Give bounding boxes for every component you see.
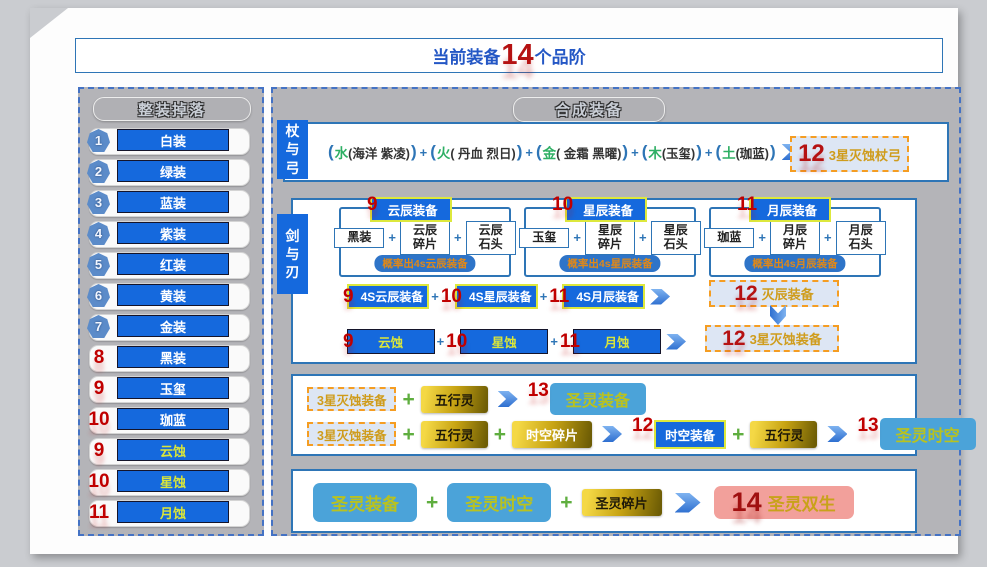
plus-icon: + <box>402 424 414 445</box>
synthesis-panel: 合成装备 杖与弓 剑与刃 (水(海洋 紫凌)) + (火( 丹血 烈日)) + … <box>271 87 961 536</box>
drop-row-blue: 3蓝装 <box>80 189 262 217</box>
slide-stage: 当前装备 14 个品阶 整装掉落 1白装 2绿装 3蓝装 4紫装 5红装 6黄装… <box>0 0 987 567</box>
recipe-title: 星辰装备 <box>565 197 647 222</box>
recipe-header: 10 星辰装备 <box>544 197 647 222</box>
element-metal: 金 <box>543 142 557 162</box>
holy-twin-section: 圣灵装备 + 圣灵时空 + 圣灵碎片 14 圣灵双生 <box>291 469 917 533</box>
element-fire-detail: ( 丹血 烈日) <box>450 143 515 162</box>
drop-row-gold: 7金装 <box>80 313 262 341</box>
sword-blade-label: 剑与刃 <box>277 214 308 294</box>
plus-icon: + <box>437 334 445 349</box>
tier-number: 10 <box>84 471 114 493</box>
ingredient: 月辰 碎片 <box>770 221 820 255</box>
element-wood: 木 <box>648 142 662 162</box>
drop-row-star-eclipse: 10星蚀 <box>80 468 262 496</box>
equip-cloud-eclipse: 云蚀 <box>347 329 435 354</box>
equip-spacetime: 时空装备 <box>654 420 726 449</box>
material-wuxingling: 五行灵 <box>421 386 488 413</box>
tier-bar: 云蚀 <box>117 439 229 461</box>
arrow-right-icon <box>602 426 622 442</box>
plus-icon: + <box>525 145 533 160</box>
arrow-right-icon <box>827 426 847 442</box>
drop-row-white: 1白装 <box>80 127 262 155</box>
paren: ) <box>517 142 523 162</box>
row-eclipse-equipment: 9 云蚀 + 10 星蚀 + 11 月蚀 <box>343 329 691 354</box>
arrow-right-icon <box>666 334 686 350</box>
drop-panel: 整装掉落 1白装 2绿装 3蓝装 4紫装 5红装 6黄装 7金装 8黑装 9玉玺… <box>78 87 264 536</box>
plus-icon: + <box>388 230 396 245</box>
plus-icon: + <box>431 289 439 304</box>
recipe-columns: 9 云辰装备 黑装 + 云辰 碎片 + 云辰 石头 概率出4s云辰装备 <box>339 197 881 277</box>
tier-number: 9 <box>343 286 354 308</box>
result-label: 3星灭蚀装备 <box>750 329 822 348</box>
paren: ) <box>622 142 628 162</box>
paren: ( <box>430 142 436 162</box>
result-tier-number: 12 <box>798 142 825 166</box>
ingredient: 玉玺 <box>519 228 569 248</box>
slide-page: 当前装备 14 个品阶 整装掉落 1白装 2绿装 3蓝装 4紫装 5红装 6黄装… <box>30 8 958 554</box>
title-suffix: 个品阶 <box>535 43 586 68</box>
result-label: 3星灭蚀杖弓 <box>829 145 901 164</box>
arrow-down-icon <box>770 305 786 325</box>
ingredients: 珈蓝 + 月辰 碎片 + 月辰 石头 <box>711 221 879 255</box>
element-earth-detail: (珈蓝) <box>736 143 769 162</box>
result-holy-spacetime: 圣灵时空 <box>880 418 976 450</box>
drop-panel-header: 整装掉落 <box>93 97 251 121</box>
drop-row-cloud-eclipse: 9云蚀 <box>80 437 262 465</box>
synthesis-panel-header: 合成装备 <box>513 97 665 122</box>
drop-list: 1白装 2绿装 3蓝装 4紫装 5红装 6黄装 7金装 8黑装 9玉玺 10珈蓝… <box>80 127 262 527</box>
tier-bar: 紫装 <box>117 222 229 244</box>
recipe-header: 9 云辰装备 <box>359 197 452 222</box>
title-prefix: 当前装备 <box>432 43 500 68</box>
recipe-star: 10 星辰装备 玉玺 + 星辰 碎片 + 星辰 石头 概率出4s星辰装备 <box>524 207 696 277</box>
probability-note: 概率出4s月辰装备 <box>744 255 845 272</box>
element-earth: 土 <box>722 142 736 162</box>
recipe-title: 云辰装备 <box>370 197 452 222</box>
row-4s-equipment: 9 4S云辰装备 + 10 4S星辰装备 + 11 4S月辰装备 <box>343 284 675 309</box>
material-wuxingling: 五行灵 <box>750 421 817 448</box>
equip-star-eclipse: 星蚀 <box>460 329 548 354</box>
tier-bar: 绿装 <box>117 160 229 182</box>
tier-bar: 蓝装 <box>117 191 229 213</box>
ingredients: 黑装 + 云辰 碎片 + 云辰 石头 <box>341 221 509 255</box>
paren: ( <box>642 142 648 162</box>
staff-bow-label: 杖与弓 <box>277 120 308 179</box>
arrow-right-icon <box>675 493 701 513</box>
staff-bow-formula: (水(海洋 紫凌)) + (火( 丹血 烈日)) + (金( 金霜 黑曜)) +… <box>327 124 807 180</box>
paren: ( <box>715 142 721 162</box>
arrow-right-icon <box>498 391 518 407</box>
tier-bar: 珈蓝 <box>117 408 229 430</box>
title-count: 14 <box>501 41 533 70</box>
paren: ( <box>536 142 542 162</box>
holy-row-2: 3星灭蚀装备 + 五行灵 + 时空碎片 12 时空装备 + 五行灵 13 圣灵时… <box>307 418 976 450</box>
plus-icon: + <box>639 230 647 245</box>
plus-icon: + <box>573 230 581 245</box>
ingredient: 云辰 碎片 <box>400 221 450 255</box>
tier-number: 11 <box>560 331 580 353</box>
tier-number: 9 <box>367 194 378 216</box>
tier-number: 9 <box>84 440 114 462</box>
plus-icon: + <box>705 145 713 160</box>
equip-4s-star: 4S星辰装备 <box>455 284 538 309</box>
tier-number: 10 <box>84 409 114 431</box>
drop-row-green: 2绿装 <box>80 158 262 186</box>
plus-icon: + <box>758 230 766 245</box>
element-fire: 火 <box>437 142 451 162</box>
tier-number: 11 <box>737 194 757 216</box>
tier-number: 10 <box>441 286 462 308</box>
result-holy-equip: 圣灵装备 <box>550 383 646 415</box>
drop-row-black: 8黑装 <box>80 344 262 372</box>
material-spacetime-shard: 时空碎片 <box>512 421 592 448</box>
result-3star-eclipse: 12 3星灭蚀装备 <box>705 325 839 352</box>
plus-icon: + <box>631 145 639 160</box>
result-miechen: 12 灭辰装备 <box>709 280 839 307</box>
tier-number: 11 <box>549 286 569 308</box>
tier-bar: 星蚀 <box>117 470 229 492</box>
drop-row-yellow: 6黄装 <box>80 282 262 310</box>
result-tier-number: 14 <box>732 489 762 516</box>
plus-icon: + <box>824 230 832 245</box>
tier-bar: 月蚀 <box>117 501 229 523</box>
result-label: 圣灵双生 <box>768 490 836 515</box>
drop-row-purple: 4紫装 <box>80 220 262 248</box>
tier-bar: 黑装 <box>117 346 229 368</box>
plus-icon: + <box>560 492 572 513</box>
ingredient: 黑装 <box>334 228 384 248</box>
recipe-header: 11 月辰装备 <box>729 197 831 222</box>
recipe-cloud: 9 云辰装备 黑装 + 云辰 碎片 + 云辰 石头 概率出4s云辰装备 <box>339 207 511 277</box>
holy-spirit-section: 3星灭蚀装备 + 五行灵 13 圣灵装备 3星灭蚀装备 + 五行灵 + 时空碎片… <box>291 374 917 456</box>
tier-number: 10 <box>446 331 467 353</box>
result-holy-twin: 14 圣灵双生 <box>714 486 854 519</box>
element-wood-detail: (玉玺) <box>662 143 695 162</box>
material-wuxingling: 五行灵 <box>421 421 488 448</box>
tier-bar: 红装 <box>117 253 229 275</box>
plus-icon: + <box>550 334 558 349</box>
staff-bow-section: (水(海洋 紫凌)) + (火( 丹血 烈日)) + (金( 金霜 黑曜)) +… <box>283 122 949 182</box>
probability-note: 概率出4s云辰装备 <box>374 255 475 272</box>
plus-icon: + <box>420 145 428 160</box>
material-holy-shard: 圣灵碎片 <box>582 489 662 516</box>
element-water-detail: (海洋 紫凌) <box>348 143 410 162</box>
recipe-title: 月辰装备 <box>749 197 831 222</box>
plus-icon: + <box>402 389 414 410</box>
input-3star-eclipse: 3星灭蚀装备 <box>307 387 396 411</box>
input-3star-eclipse: 3星灭蚀装备 <box>307 422 396 446</box>
tier-bar: 金装 <box>117 315 229 337</box>
tier-bar: 黄装 <box>117 284 229 306</box>
drop-row-moon-eclipse: 11月蚀 <box>80 499 262 527</box>
title-bar: 当前装备 14 个品阶 <box>75 38 943 73</box>
plus-icon: + <box>454 230 462 245</box>
ingredient: 月辰 石头 <box>836 221 886 255</box>
tier-number: 10 <box>552 194 573 216</box>
tier-number: 9 <box>343 331 354 353</box>
plus-icon: + <box>732 424 744 445</box>
element-water: 水 <box>335 142 349 162</box>
drop-row-jade: 9玉玺 <box>80 375 262 403</box>
twin-row: 圣灵装备 + 圣灵时空 + 圣灵碎片 14 圣灵双生 <box>313 483 854 522</box>
result-label: 灭辰装备 <box>762 284 814 303</box>
input-holy-spacetime: 圣灵时空 <box>447 483 551 522</box>
ingredient: 星辰 碎片 <box>585 221 635 255</box>
paren: ( <box>328 142 334 162</box>
plus-icon: + <box>540 289 548 304</box>
result-tier-number: 12 <box>722 328 745 349</box>
input-holy-equip: 圣灵装备 <box>313 483 417 522</box>
ingredient: 星辰 石头 <box>651 221 701 255</box>
ingredients: 玉玺 + 星辰 碎片 + 星辰 石头 <box>526 221 694 255</box>
holy-row-1: 3星灭蚀装备 + 五行灵 13 圣灵装备 <box>307 383 646 415</box>
tier-bar: 玉玺 <box>117 377 229 399</box>
arrow-right-icon <box>650 289 670 305</box>
sword-blade-section: 9 云辰装备 黑装 + 云辰 碎片 + 云辰 石头 概率出4s云辰装备 <box>291 198 917 364</box>
tier-number: 11 <box>84 502 114 524</box>
tier-number: 13 <box>857 415 878 437</box>
paren: ) <box>696 142 702 162</box>
ingredient: 云辰 石头 <box>466 221 516 255</box>
tier-bar: 白装 <box>117 129 229 151</box>
tier-number: 8 <box>84 347 114 369</box>
plus-icon: + <box>494 424 506 445</box>
plus-icon: + <box>426 492 438 513</box>
tier-number: 13 <box>528 380 549 402</box>
probability-note: 概率出4s星辰装备 <box>559 255 660 272</box>
equip-4s-cloud: 4S云辰装备 <box>347 284 430 309</box>
paren: ) <box>770 142 776 162</box>
element-metal-detail: ( 金霜 黑曜) <box>556 143 621 162</box>
tier-number: 12 <box>632 415 653 437</box>
equip-4s-moon: 4S月辰装备 <box>562 284 645 309</box>
drop-row-qielan: 10珈蓝 <box>80 406 262 434</box>
equip-moon-eclipse: 月蚀 <box>573 329 661 354</box>
tier-number: 9 <box>84 378 114 400</box>
result-staff-bow: 12 3星灭蚀杖弓 <box>790 136 909 172</box>
recipe-moon: 11 月辰装备 珈蓝 + 月辰 碎片 + 月辰 石头 概率出4s月辰装备 <box>709 207 881 277</box>
result-tier-number: 12 <box>734 283 757 304</box>
ingredient: 珈蓝 <box>704 228 754 248</box>
paren: ) <box>411 142 417 162</box>
drop-row-red: 5红装 <box>80 251 262 279</box>
